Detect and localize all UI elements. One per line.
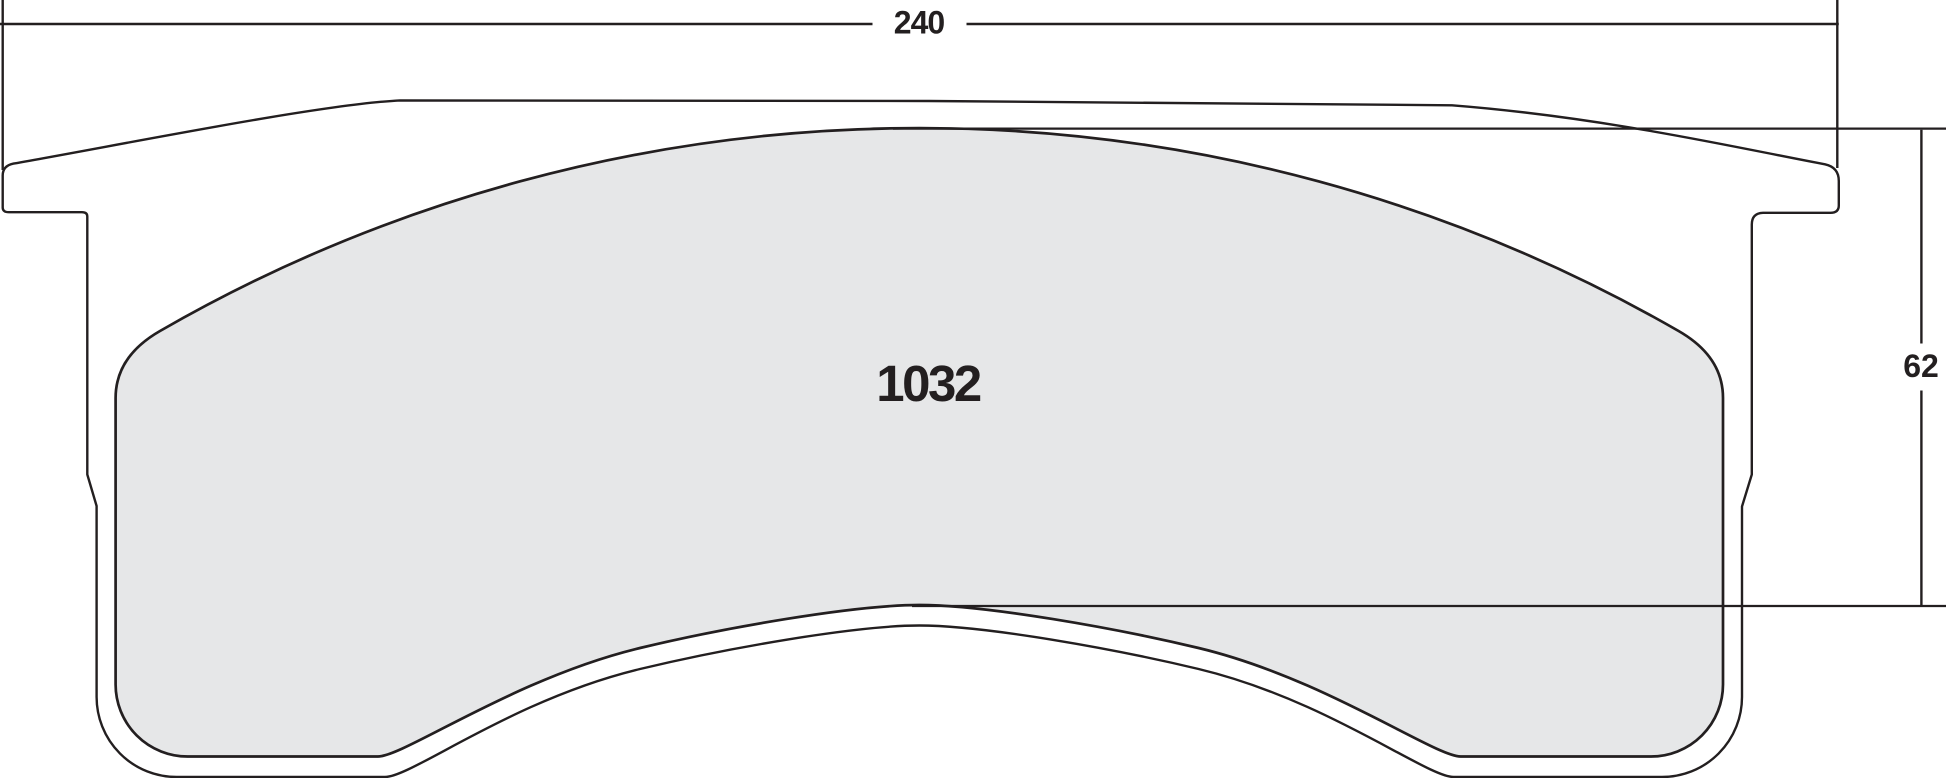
- svg-text:240: 240: [894, 5, 945, 41]
- svg-text:62: 62: [1903, 348, 1939, 384]
- svg-text:1032: 1032: [876, 355, 981, 412]
